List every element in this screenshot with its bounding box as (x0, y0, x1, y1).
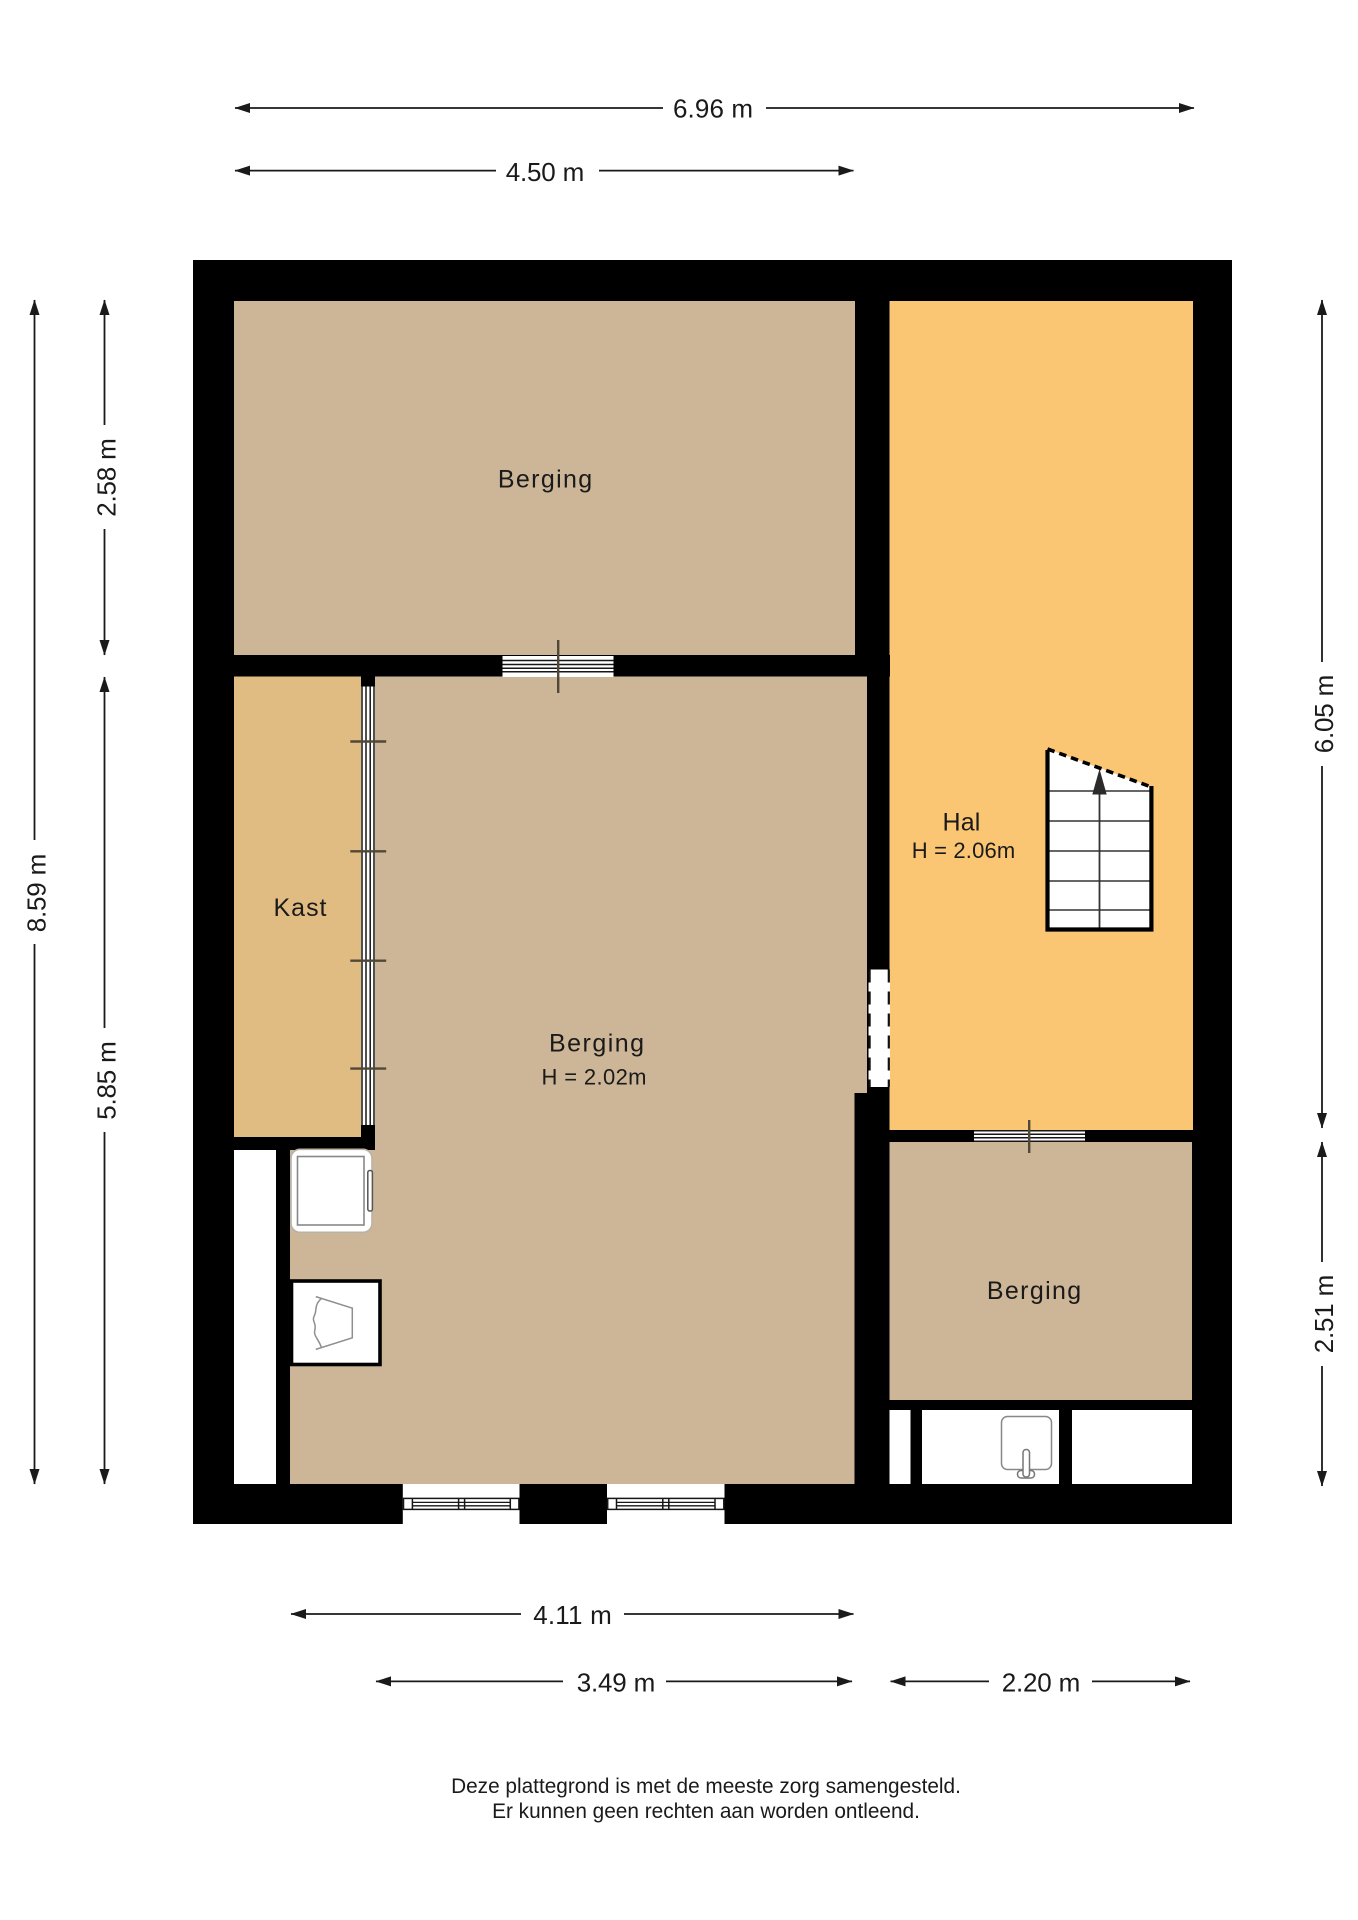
svg-text:6.96 m: 6.96 m (673, 94, 753, 124)
svg-text:Er kunnen geen rechten aan wor: Er kunnen geen rechten aan worden ontlee… (492, 1800, 920, 1823)
svg-text:3.49 m: 3.49 m (577, 1668, 656, 1698)
svg-text:4.50 m: 4.50 m (506, 157, 585, 187)
svg-text:2.51 m: 2.51 m (1309, 1275, 1339, 1354)
svg-text:Berging: Berging (987, 1277, 1081, 1305)
svg-text:Deze plattegrond is met de mee: Deze plattegrond is met de meeste zorg s… (451, 1775, 961, 1798)
svg-text:4.11 m: 4.11 m (533, 1600, 612, 1630)
svg-text:H = 2.06m: H = 2.06m (912, 838, 1016, 863)
svg-text:2.58 m: 2.58 m (92, 438, 122, 517)
svg-text:2.20 m: 2.20 m (1002, 1668, 1081, 1698)
svg-text:8.59 m: 8.59 m (22, 854, 52, 933)
svg-text:6.05 m: 6.05 m (1309, 675, 1339, 754)
svg-text:Hal: Hal (943, 809, 981, 837)
svg-text:Kast: Kast (274, 894, 327, 922)
svg-text:Berging: Berging (549, 1030, 644, 1058)
svg-text:Berging: Berging (498, 466, 592, 494)
svg-text:H = 2.02m: H = 2.02m (542, 1065, 647, 1090)
svg-text:5.85 m: 5.85 m (92, 1041, 122, 1120)
